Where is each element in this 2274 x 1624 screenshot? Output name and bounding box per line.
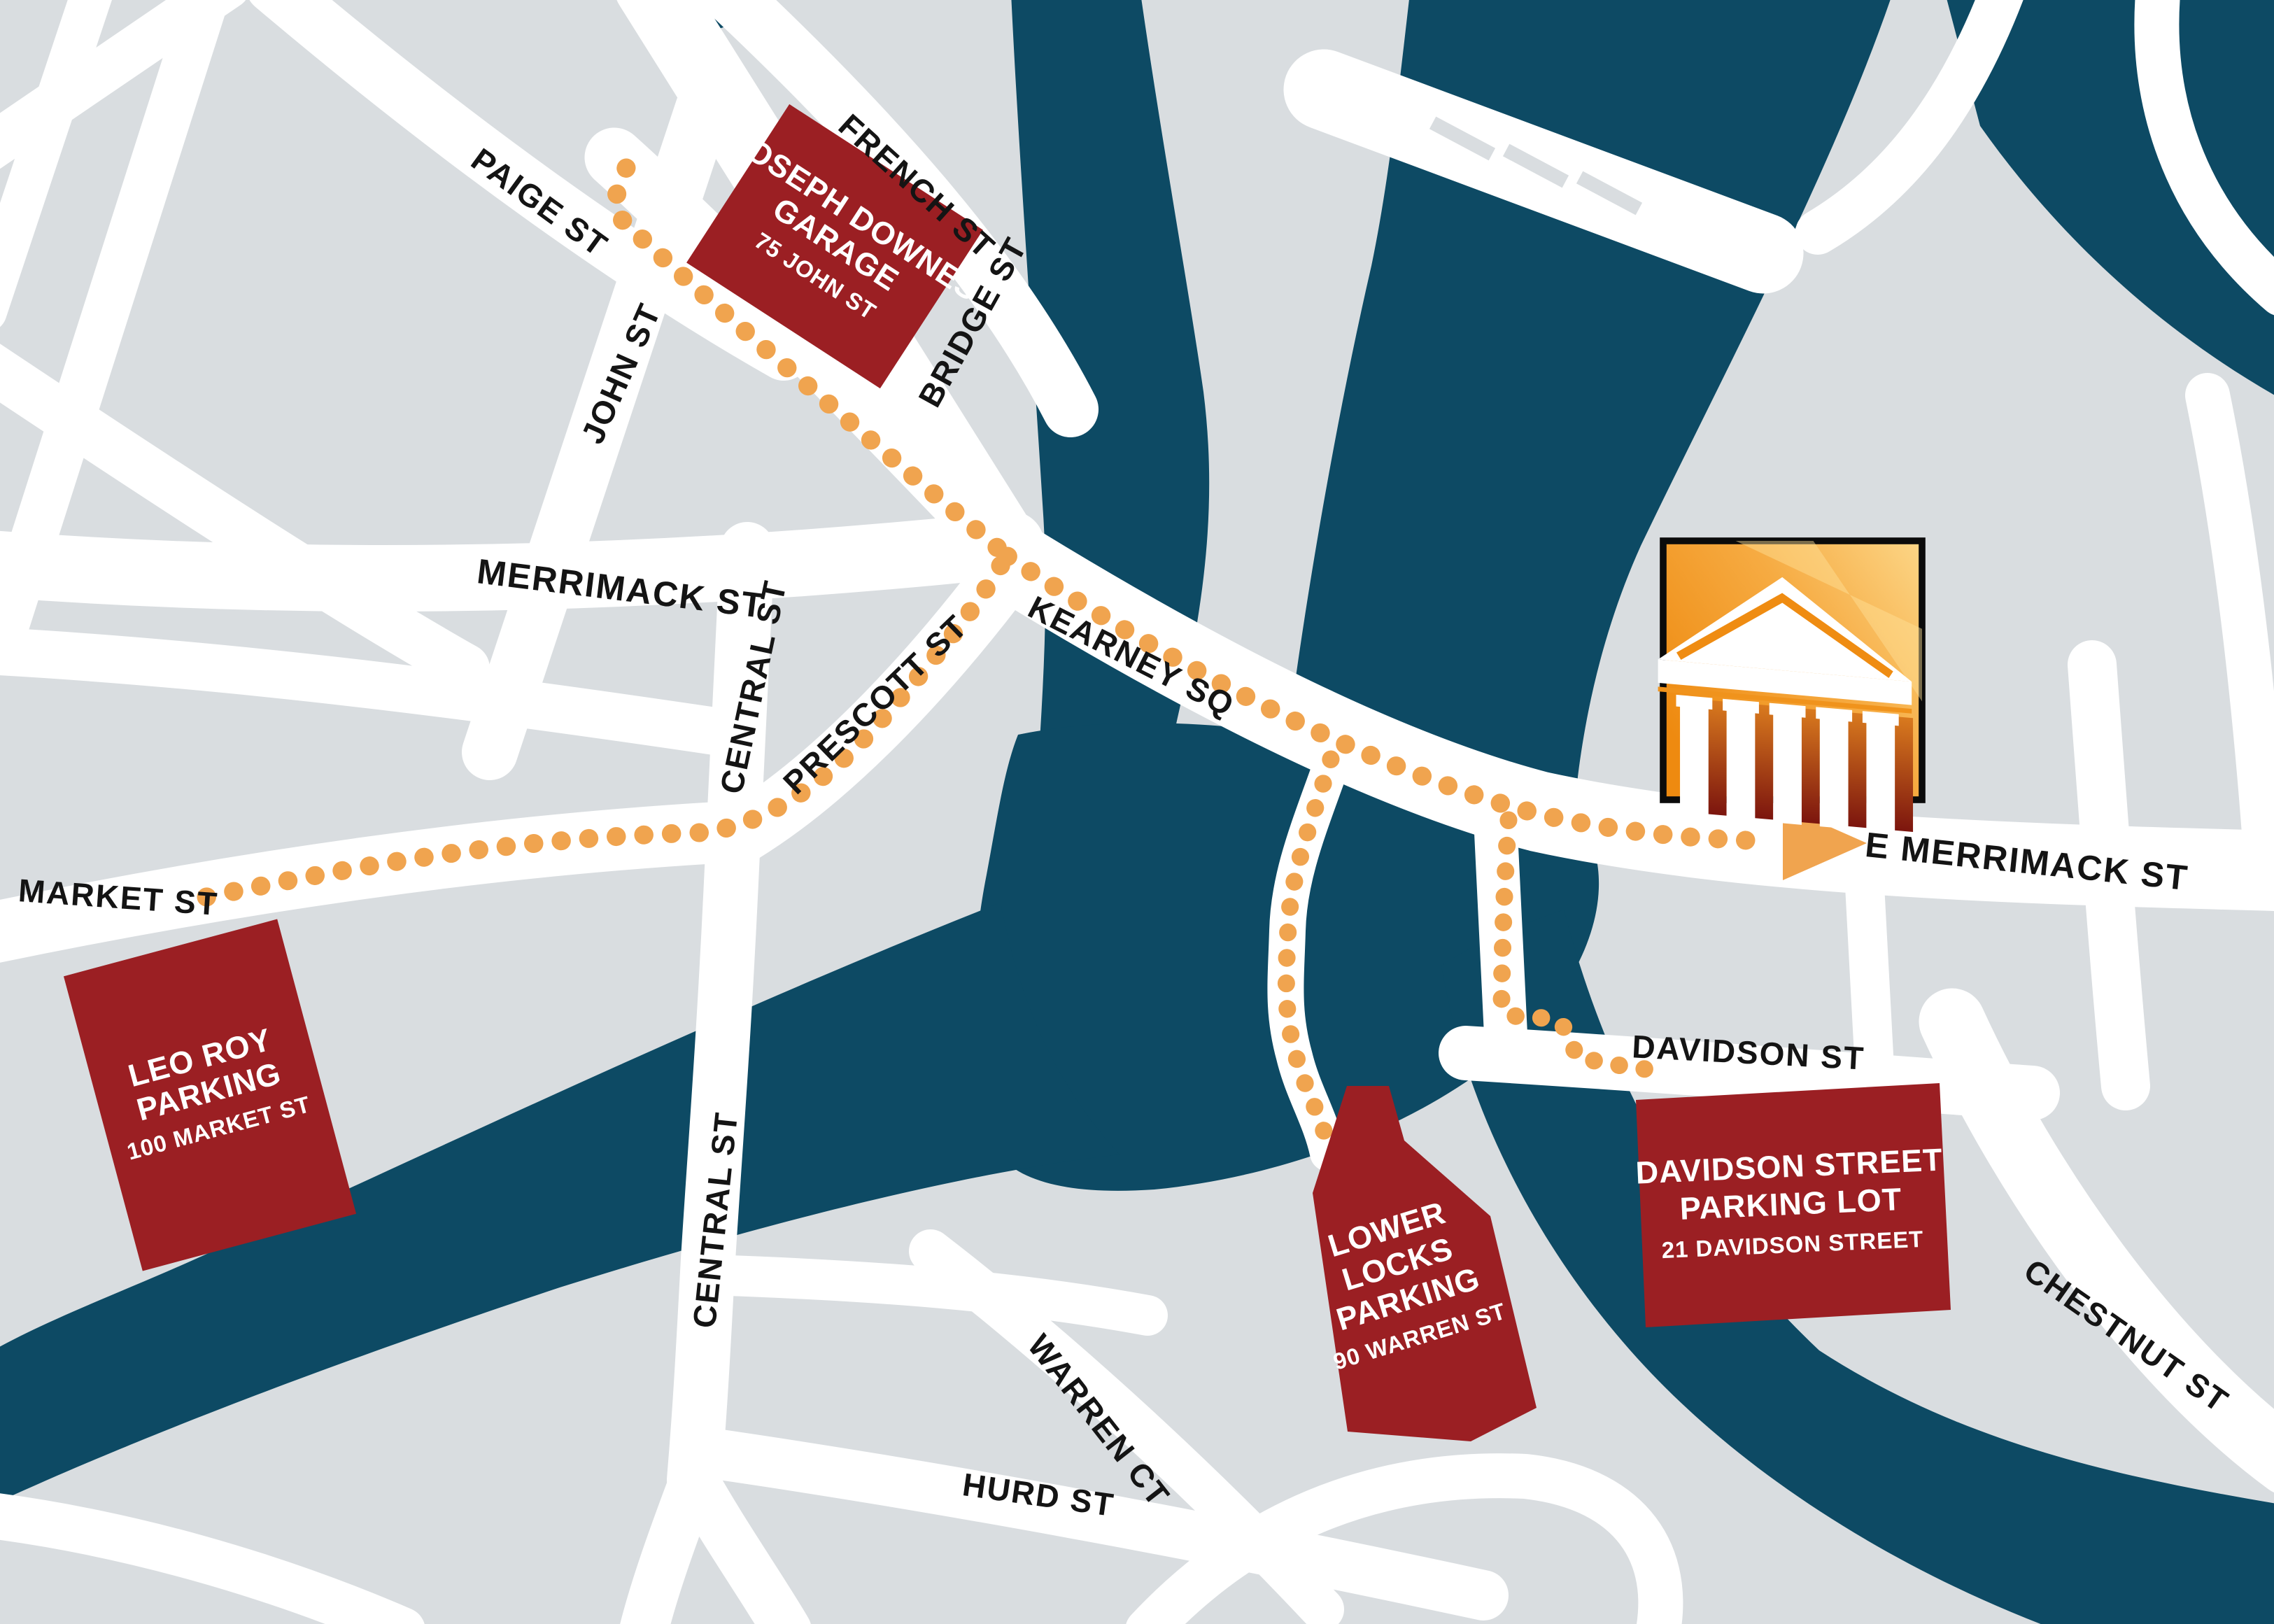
map-canvas: JOSEPH DOWNES GARAGE 75 JOHN ST LEO ROY … [0, 0, 2274, 1624]
parking-lot-davidson-street: DAVIDSON STREET PARKING LOT 21 DAVIDSON … [1635, 1083, 1951, 1327]
parking-map: JOSEPH DOWNES GARAGE 75 JOHN ST LEO ROY … [0, 0, 2274, 1624]
destination-logo [1658, 541, 1922, 835]
